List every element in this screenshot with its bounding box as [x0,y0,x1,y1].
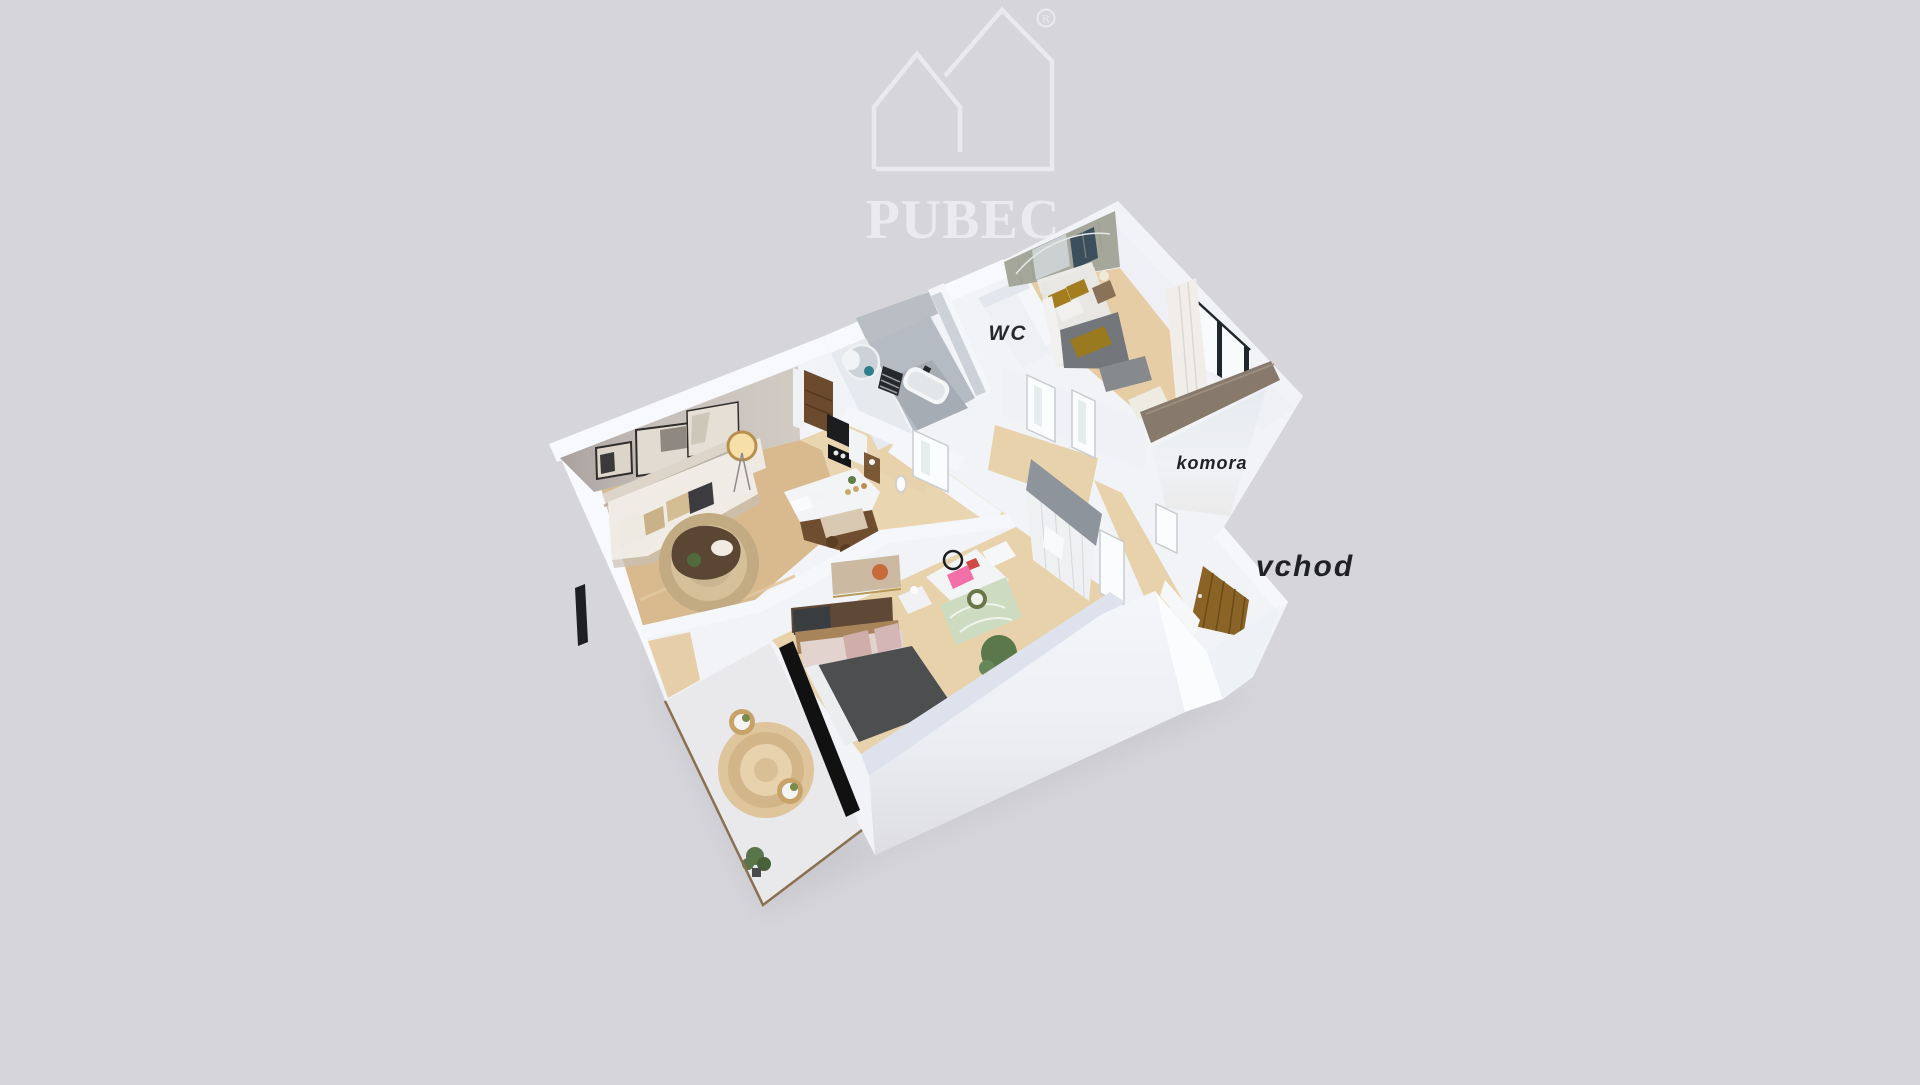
svg-text:WC: WC [989,322,1028,345]
svg-text:R: R [1042,12,1050,26]
svg-text:vchod: vchod [1256,550,1354,583]
svg-text:komora: komora [1176,453,1247,473]
svg-text:PUBEC: PUBEC [866,189,1061,251]
